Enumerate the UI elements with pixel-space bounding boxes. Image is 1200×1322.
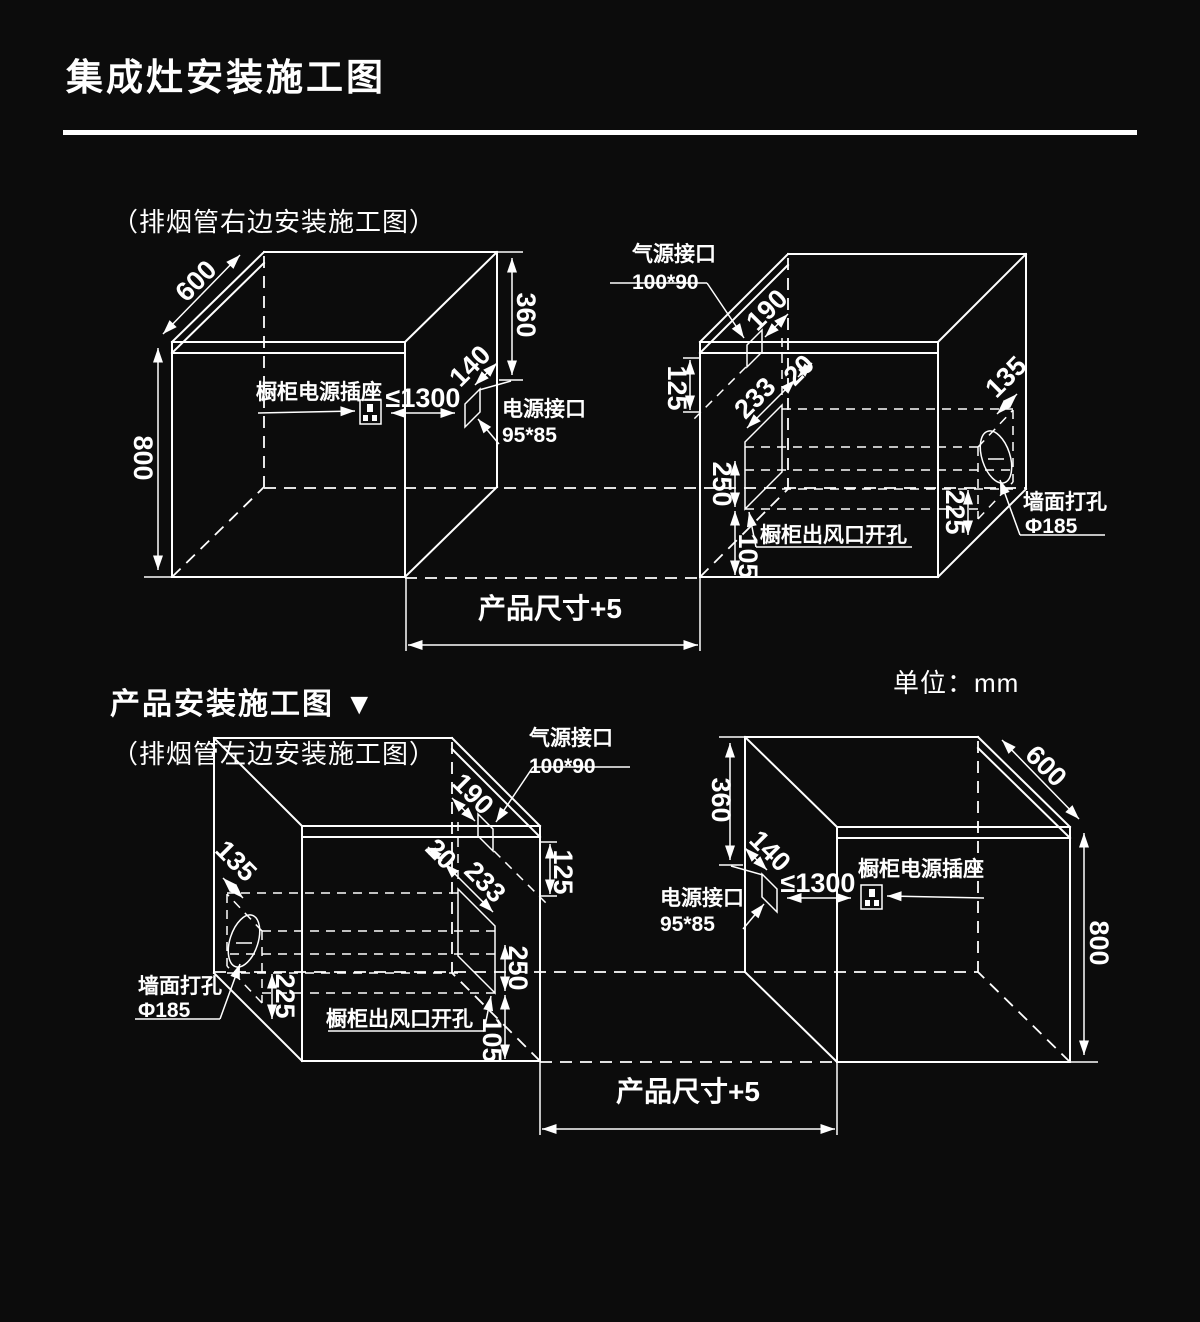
- unit-label: 单位：mm: [893, 668, 1019, 698]
- socket-leader: [258, 411, 355, 413]
- dim-vent-105: 105: [477, 1017, 507, 1062]
- power-interface-label: 电源接口: [502, 398, 586, 421]
- power-interface-leader: [478, 419, 499, 444]
- dim-vent-20: 20: [420, 833, 462, 875]
- max-distance-label: ≤1300: [781, 868, 856, 898]
- dim-top-360: 360: [511, 292, 541, 337]
- vent-opening-label: 橱柜出风口开孔: [760, 523, 907, 547]
- cabinet-socket-lines-mirrored: [719, 737, 1098, 1062]
- dim-height-800: 800: [1084, 920, 1114, 965]
- wall-hole-label: 墙面打孔: [138, 974, 222, 998]
- power-interface-size: 95*85: [502, 424, 557, 447]
- dim-hole-135: 135: [979, 350, 1032, 403]
- product-heading: 产品安装施工图 ▼: [110, 688, 376, 721]
- dim-gas-125: 125: [662, 365, 692, 410]
- wall-hole-size: Φ185: [138, 999, 191, 1022]
- gas-interface-size: 100*90: [632, 271, 699, 294]
- cabinet-top-right-texts: 气源接口 100*90 190 125 20 233 250 105 225 1…: [631, 242, 1107, 579]
- cabinet-socket-label: 橱柜电源插座: [858, 857, 984, 881]
- dim-height-800: 800: [128, 435, 158, 480]
- vent-opening-label: 橱柜出风口开孔: [326, 1007, 473, 1031]
- page: 集成灶安装施工图 （排烟管右边安装施工图） 产品安装施工图 ▼ （排烟管左边安装…: [0, 0, 1200, 1322]
- top-section-caption: （排烟管右边安装施工图）: [112, 207, 436, 237]
- gas-interface-label: 气源接口: [631, 242, 716, 266]
- dim-vent-250: 250: [707, 461, 737, 506]
- gas-interface-size: 100*90: [529, 755, 596, 778]
- gas-interface-label: 气源接口: [528, 726, 613, 750]
- wall-hole-size: Φ185: [1025, 515, 1078, 538]
- dim-vent-250: 250: [503, 945, 533, 990]
- title-underline: [63, 130, 1137, 135]
- dim-vent-233: 233: [728, 371, 781, 424]
- wall-hole-circle: [974, 427, 1017, 487]
- dim-gas-190: 190: [740, 283, 793, 336]
- dim-hole-225: 225: [270, 973, 300, 1018]
- page-title: 集成灶安装施工图: [65, 57, 386, 98]
- dim-gas-190: 190: [446, 767, 499, 820]
- dim-hole-225: 225: [940, 489, 970, 534]
- top-row-connectors: [264, 488, 1026, 651]
- cabinet-top-left-texts: 600 800 360 140 橱柜电源插座 ≤1300 电源接口 95*85 …: [128, 254, 622, 624]
- power-interface-cutout: [465, 389, 480, 427]
- installation-diagram: 集成灶安装施工图 （排烟管右边安装施工图） 产品安装施工图 ▼ （排烟管左边安装…: [0, 0, 1200, 1322]
- dim-vent-233: 233: [458, 855, 511, 908]
- bottom-row-connectors: [214, 972, 978, 1135]
- power-interface-size: 95*85: [660, 913, 715, 936]
- power-interface-label: 电源接口: [660, 887, 744, 910]
- dim-vent-20: 20: [778, 349, 820, 391]
- max-distance-label: ≤1300: [386, 383, 461, 413]
- cabinet-bottom-right-texts: 600 800 360 140 橱柜电源插座 ≤1300 电源接口 95*85 …: [616, 739, 1114, 1107]
- wall-hole-label: 墙面打孔: [1023, 490, 1107, 514]
- dim-gas-125: 125: [548, 849, 578, 894]
- dim-vent-105: 105: [733, 533, 763, 578]
- bottom-section-caption: （排烟管左边安装施工图）: [112, 739, 436, 769]
- product-size-label-bottom: 产品尺寸+5: [616, 1076, 760, 1107]
- product-size-label-top: 产品尺寸+5: [478, 593, 622, 624]
- dim-hole-135: 135: [209, 834, 262, 887]
- cabinet-socket-lines: [144, 252, 523, 577]
- cabinet-socket-label: 橱柜电源插座: [256, 380, 382, 404]
- dim-top-360: 360: [706, 777, 736, 822]
- cabinet-bottom-left-texts: 气源接口 100*90 190 125 20 233 250 105 225 1…: [138, 726, 613, 1063]
